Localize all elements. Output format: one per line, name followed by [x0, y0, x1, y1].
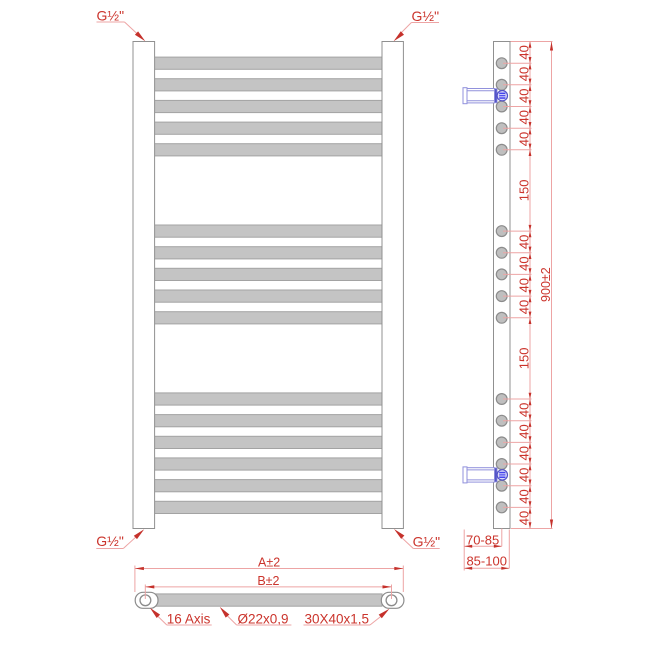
- svg-text:70-85: 70-85: [466, 532, 499, 547]
- svg-text:16 Axis: 16 Axis: [167, 611, 211, 626]
- svg-text:40: 40: [516, 300, 531, 314]
- svg-text:40: 40: [516, 403, 531, 417]
- svg-text:Ø22x0,9: Ø22x0,9: [238, 611, 289, 626]
- svg-text:40: 40: [516, 132, 531, 146]
- svg-text:40: 40: [516, 45, 531, 59]
- svg-text:40: 40: [516, 88, 531, 102]
- svg-text:900±2: 900±2: [539, 267, 553, 302]
- svg-text:40: 40: [516, 489, 531, 503]
- svg-text:G½": G½": [96, 533, 124, 549]
- svg-text:30X40x1,5: 30X40x1,5: [305, 611, 370, 626]
- svg-text:150: 150: [516, 180, 531, 202]
- svg-text:85-100: 85-100: [466, 554, 506, 569]
- svg-text:40: 40: [516, 67, 531, 81]
- svg-text:40: 40: [516, 424, 531, 438]
- svg-text:40: 40: [516, 110, 531, 124]
- svg-text:G½": G½": [413, 534, 441, 550]
- svg-text:40: 40: [516, 468, 531, 482]
- svg-text:G½": G½": [412, 8, 440, 24]
- svg-text:A±2: A±2: [258, 556, 280, 570]
- svg-text:40: 40: [516, 278, 531, 292]
- svg-text:40: 40: [516, 256, 531, 270]
- svg-text:150: 150: [516, 348, 531, 370]
- svg-text:40: 40: [516, 511, 531, 525]
- svg-text:G½": G½": [97, 8, 125, 24]
- svg-text:40: 40: [516, 446, 531, 460]
- svg-text:40: 40: [516, 235, 531, 249]
- svg-text:B±2: B±2: [257, 574, 279, 588]
